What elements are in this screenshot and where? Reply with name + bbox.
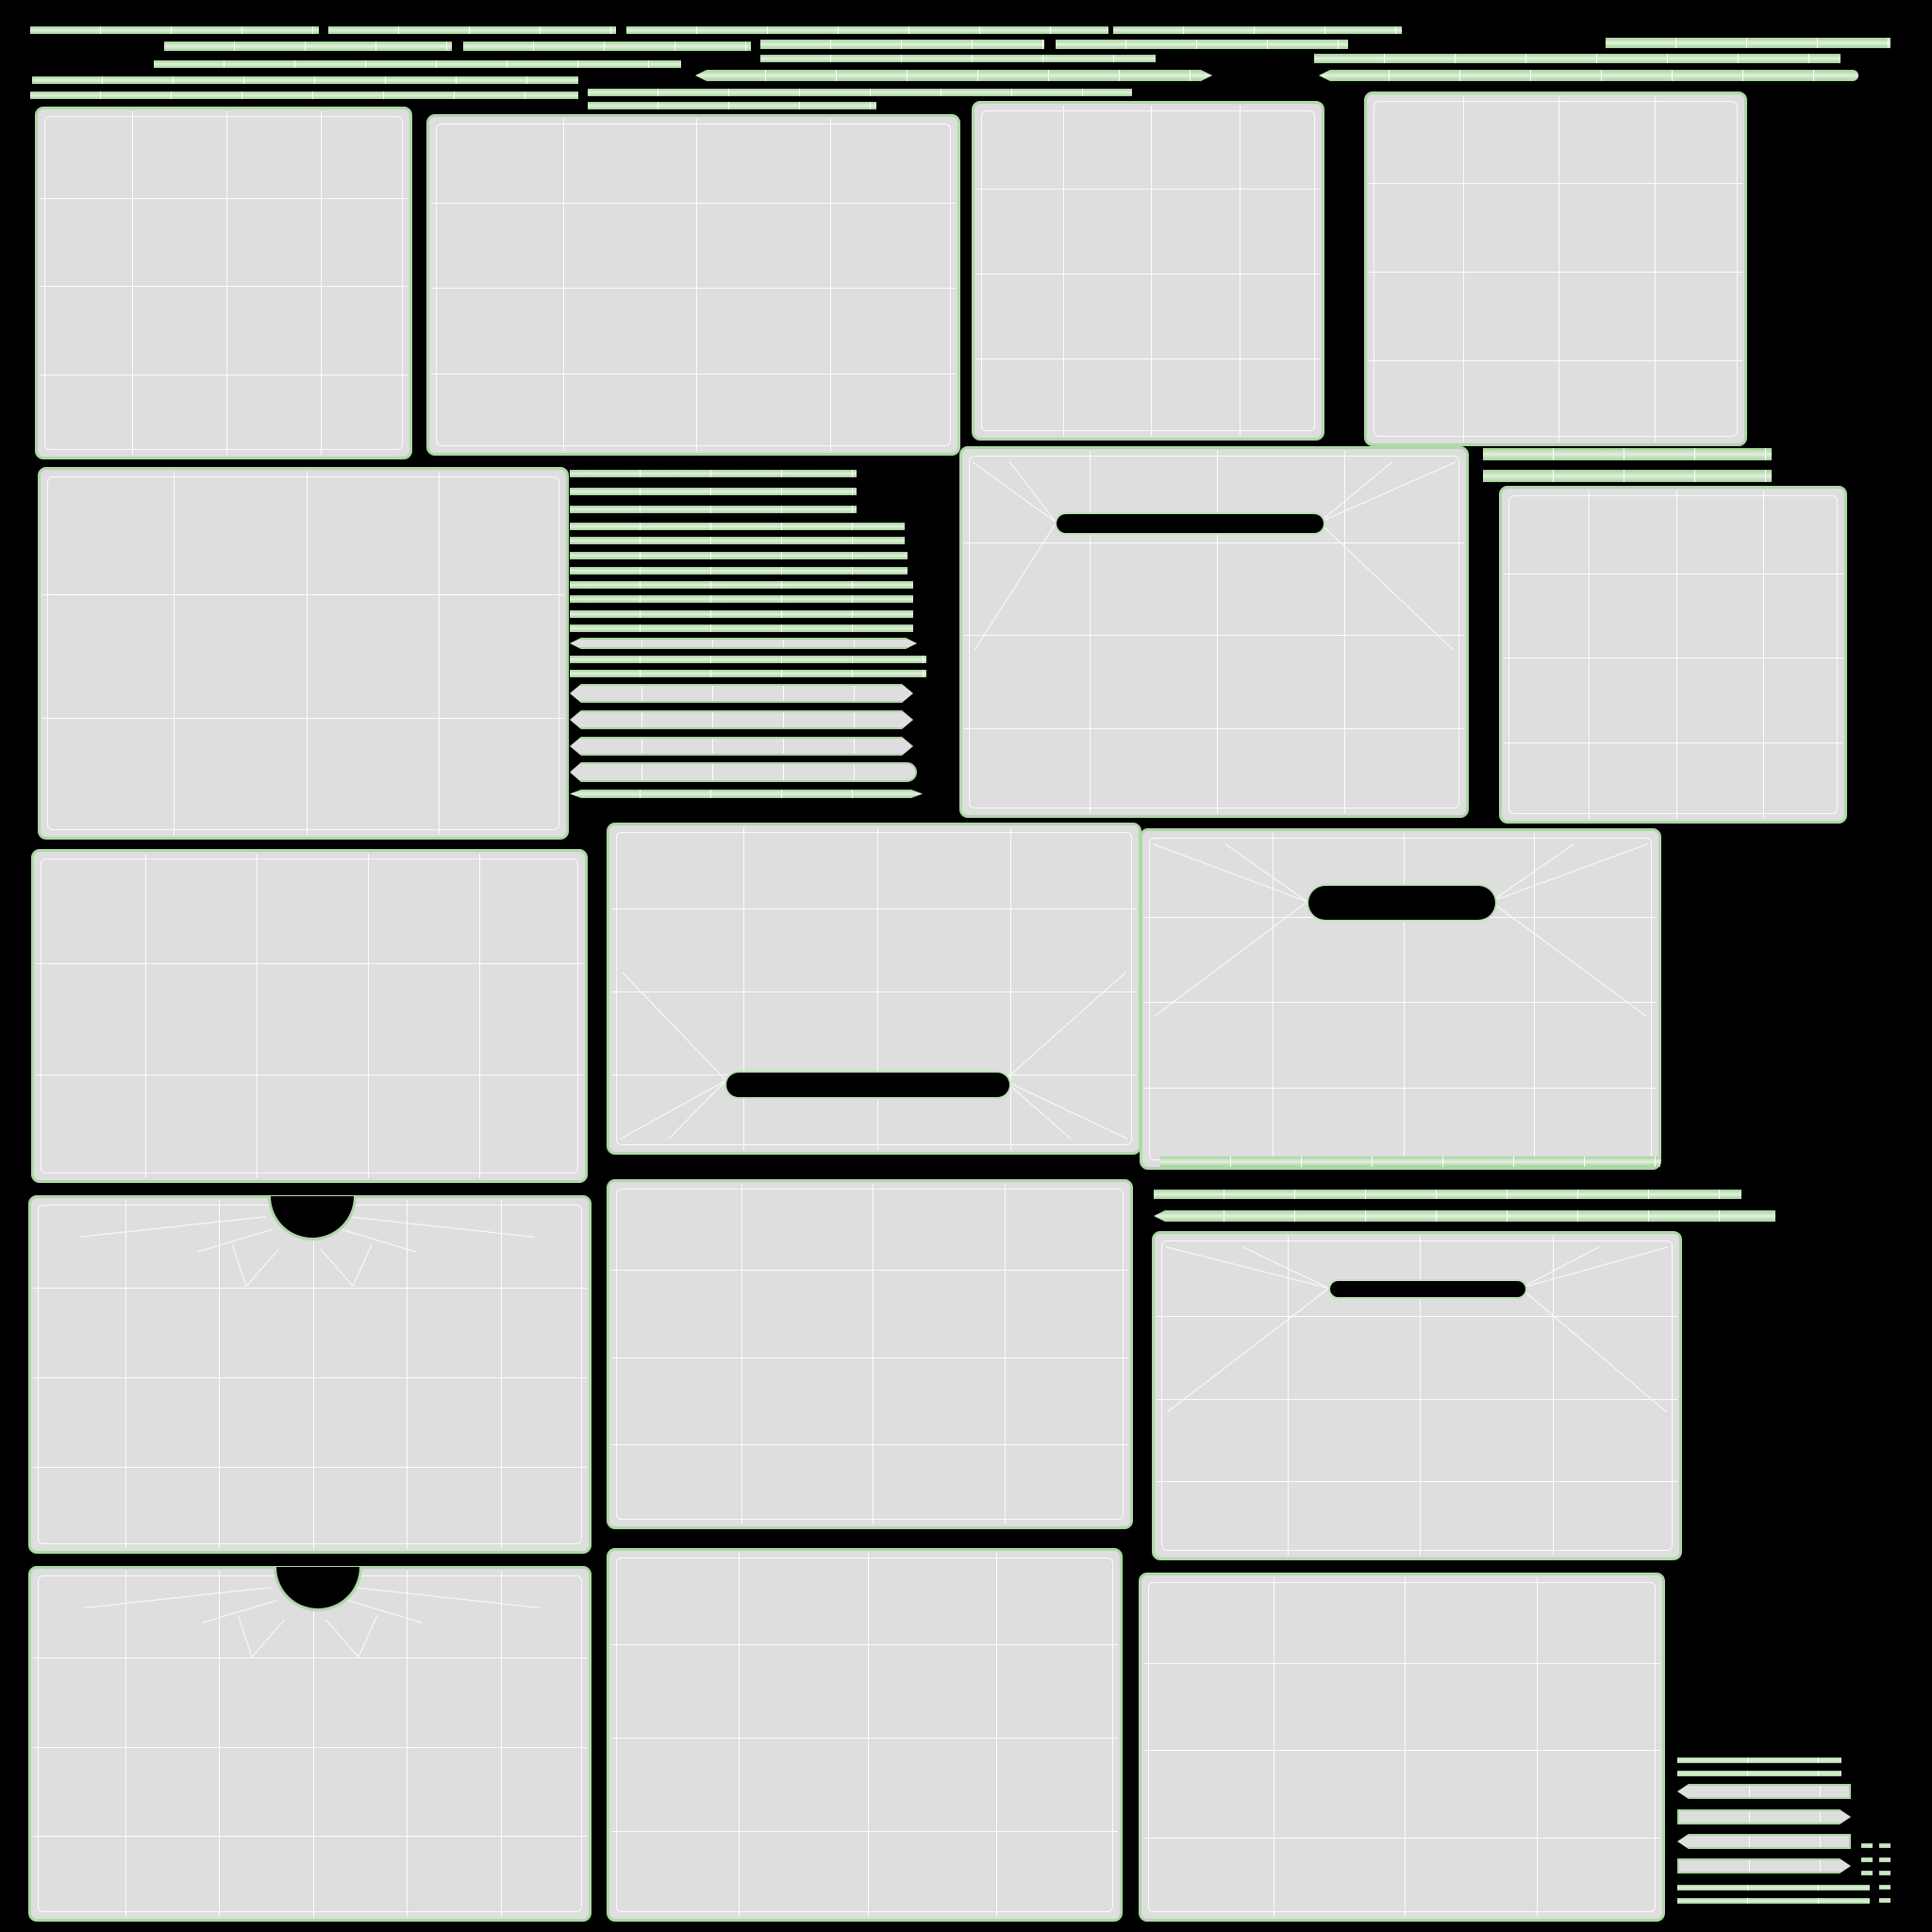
grid-line: [1553, 1236, 1554, 1556]
grid-line: [1273, 833, 1274, 1165]
uv-strip: [1677, 1809, 1851, 1824]
uv-edge-dash: [1861, 1871, 1873, 1875]
uv-strip: [1483, 448, 1772, 460]
strip-tick-marks: [572, 739, 911, 754]
grid-line: [257, 854, 258, 1178]
uv-island-grid: [38, 467, 569, 840]
uv-strip: [570, 625, 913, 632]
uv-strip: [1056, 40, 1348, 49]
grid-line: [964, 728, 1464, 729]
island-inner-outline: [616, 1189, 1124, 1520]
grid-line: [611, 1644, 1118, 1645]
uv-strip: [1677, 1898, 1870, 1904]
grid-line: [40, 375, 408, 375]
uv-strip: [463, 42, 751, 51]
grid-line: [1676, 491, 1677, 819]
wire-fan: [31, 1198, 589, 1551]
grid-line: [868, 1553, 869, 1917]
strip-tick-marks: [30, 26, 319, 34]
strip-tick-marks: [572, 764, 915, 780]
island-inner-outline: [1374, 101, 1738, 437]
strip-tick-marks: [1679, 1860, 1849, 1872]
wire-fan: [31, 1569, 589, 1919]
grid-line: [313, 1200, 314, 1549]
grid-line: [1504, 574, 1842, 575]
uv-strip: [570, 470, 857, 477]
uv-strip: [1677, 1771, 1841, 1776]
uv-strip: [1677, 1834, 1851, 1849]
grid-line: [40, 198, 408, 199]
grid-line: [611, 1444, 1128, 1445]
uv-strip: [164, 42, 452, 51]
grid-line: [125, 1200, 126, 1549]
grid-line: [174, 472, 175, 835]
grid-line: [1504, 658, 1842, 658]
grid-line: [1274, 1577, 1274, 1917]
strip-tick-marks: [570, 790, 923, 798]
grid-line: [226, 111, 227, 455]
strip-tick-marks: [760, 40, 1044, 49]
strip-tick-marks: [154, 60, 681, 68]
grid-line: [1157, 1399, 1677, 1400]
strip-tick-marks: [570, 595, 913, 603]
uv-edge-dash: [1879, 1843, 1890, 1848]
grid-line: [1143, 1663, 1660, 1664]
grid-line: [877, 827, 878, 1150]
strip-tick-marks: [570, 552, 908, 559]
uv-strip: [570, 670, 926, 677]
uv-island-grid: [607, 1179, 1133, 1529]
uv-island-notch: [28, 1195, 591, 1554]
uv-island-grid: [972, 101, 1324, 441]
island-inner-outline: [436, 124, 951, 446]
strip-tick-marks: [570, 537, 905, 544]
strip-tick-marks: [1677, 1898, 1870, 1904]
strip-tick-marks: [1483, 448, 1772, 460]
grid-line: [33, 1747, 587, 1748]
strip-tick-marks: [1679, 1811, 1849, 1823]
grid-line: [36, 963, 583, 964]
grid-line: [611, 1738, 1118, 1739]
uv-strip: [1314, 54, 1840, 63]
grid-line: [611, 1357, 1128, 1358]
grid-line: [1369, 360, 1742, 361]
grid-line: [611, 1270, 1128, 1271]
slot-cutout: [1057, 514, 1324, 533]
grid-line: [219, 1200, 220, 1549]
grid-line: [368, 854, 369, 1178]
grid-line: [132, 111, 133, 455]
uv-island-slot-top: [1140, 828, 1661, 1170]
uv-island-grid: [607, 1548, 1123, 1922]
uv-edge-dash: [1861, 1857, 1873, 1862]
uv-strip: [32, 76, 578, 84]
strip-tick-marks: [570, 610, 913, 618]
grid-line: [33, 1657, 587, 1658]
grid-line: [1369, 183, 1742, 184]
uv-strip: [570, 506, 857, 513]
uv-strip: [570, 537, 905, 544]
strip-tick-marks: [1113, 26, 1402, 34]
grid-line: [431, 374, 956, 375]
grid-line: [33, 1377, 587, 1378]
grid-line: [407, 1571, 408, 1917]
strip-tick-marks: [1677, 1771, 1841, 1776]
uv-strip: [760, 40, 1044, 49]
uv-edge-dash: [1861, 1843, 1873, 1848]
strip-tick-marks: [328, 26, 616, 34]
uv-atlas-canvas: [0, 0, 1932, 1932]
strip-tick-marks: [1483, 470, 1772, 482]
uv-strip: [570, 610, 913, 618]
uv-strip: [1677, 1858, 1851, 1874]
grid-line: [40, 286, 408, 287]
uv-strip: [1677, 1757, 1841, 1763]
uv-strip: [1160, 1157, 1660, 1167]
strip-tick-marks: [572, 712, 911, 727]
uv-strip: [1319, 70, 1858, 81]
grid-line: [1537, 1577, 1538, 1917]
uv-strip: [570, 638, 917, 649]
uv-strip: [570, 552, 908, 559]
grid-line: [1090, 451, 1091, 813]
grid-line: [1005, 1184, 1006, 1524]
grid-line: [1151, 106, 1152, 436]
strip-tick-marks: [1606, 38, 1890, 48]
uv-strip: [1154, 1190, 1741, 1199]
strip-tick-marks: [570, 470, 857, 477]
grid-line: [1405, 1577, 1406, 1917]
grid-line: [313, 1571, 314, 1917]
strip-tick-marks: [570, 670, 926, 677]
grid-line: [1063, 106, 1064, 436]
strip-tick-marks: [570, 523, 905, 530]
grid-line: [739, 1553, 740, 1917]
grid-line: [431, 288, 956, 289]
strip-tick-marks: [1160, 1157, 1660, 1167]
uv-island-grid: [1139, 1573, 1665, 1922]
grid-line: [1144, 1002, 1657, 1003]
grid-line: [696, 119, 697, 451]
notch-cutout: [274, 1567, 362, 1611]
uv-island-grid: [31, 849, 588, 1183]
uv-island-grid: [35, 107, 412, 459]
grid-line: [33, 1288, 587, 1289]
grid-line: [1143, 1750, 1660, 1751]
grid-line: [611, 1831, 1118, 1832]
uv-island-notch: [28, 1566, 591, 1922]
island-inner-outline: [616, 832, 1132, 1145]
strip-tick-marks: [1056, 40, 1348, 49]
grid-line: [1763, 491, 1764, 819]
grid-line: [964, 542, 1464, 543]
island-inner-outline: [1508, 495, 1838, 814]
uv-edge-dash: [1879, 1885, 1890, 1890]
grid-line: [307, 472, 308, 835]
strip-tick-marks: [164, 42, 452, 51]
uv-edge-dash: [1879, 1871, 1890, 1875]
island-inner-outline: [981, 110, 1315, 431]
strip-tick-marks: [588, 89, 1132, 96]
grid-line: [321, 111, 322, 455]
grid-line: [407, 1200, 408, 1549]
grid-line: [42, 594, 564, 595]
grid-line: [611, 908, 1137, 909]
uv-strip: [1154, 1210, 1775, 1222]
grid-line: [1288, 1236, 1289, 1556]
grid-line: [1534, 833, 1535, 1165]
grid-line: [873, 1184, 874, 1524]
wire-fan: [962, 449, 1466, 815]
grid-line: [611, 991, 1137, 992]
uv-island-slot-bottom: [607, 823, 1141, 1155]
grid-line: [431, 203, 956, 204]
grid-line: [501, 1571, 502, 1917]
slot-cutout: [1308, 886, 1495, 920]
strip-tick-marks: [1319, 70, 1858, 81]
uv-strip: [570, 684, 913, 703]
grid-line: [1655, 96, 1656, 441]
grid-line: [976, 274, 1320, 275]
grid-line: [145, 854, 146, 1178]
uv-strip: [570, 523, 905, 530]
uv-strip: [570, 656, 926, 663]
strip-tick-marks: [463, 42, 751, 51]
uv-edge-dash: [1879, 1898, 1890, 1903]
uv-strip: [626, 26, 1108, 34]
strip-tick-marks: [570, 567, 908, 575]
uv-island-slot-top: [959, 446, 1469, 818]
strip-tick-marks: [626, 26, 1108, 34]
grid-line: [741, 1184, 742, 1524]
uv-strip: [1113, 26, 1402, 34]
uv-strip: [588, 102, 876, 109]
strip-tick-marks: [1679, 1786, 1849, 1797]
island-inner-outline: [1148, 1582, 1656, 1912]
strip-tick-marks: [695, 70, 1212, 81]
grid-line: [479, 854, 480, 1178]
uv-strip: [1483, 470, 1772, 482]
grid-line: [1157, 1316, 1677, 1317]
uv-strip: [1606, 38, 1890, 48]
grid-line: [125, 1571, 126, 1917]
uv-strip: [570, 710, 913, 729]
grid-line: [1504, 742, 1842, 743]
grid-line: [996, 1553, 997, 1917]
grid-line: [1463, 96, 1464, 441]
strip-tick-marks: [32, 76, 578, 84]
island-inner-outline: [41, 858, 578, 1174]
notch-cutout: [268, 1196, 357, 1241]
island-inner-outline: [616, 1557, 1113, 1912]
grid-line: [33, 1836, 587, 1837]
uv-strip: [588, 89, 1132, 96]
uv-edge-dash: [1879, 1857, 1890, 1862]
island-inner-outline: [44, 116, 403, 450]
uv-strip: [695, 70, 1212, 81]
uv-strip: [30, 92, 578, 99]
uv-island-grid: [1364, 92, 1747, 446]
grid-line: [501, 1200, 502, 1549]
strip-tick-marks: [760, 55, 1156, 62]
island-inner-outline: [969, 456, 1459, 808]
strip-tick-marks: [1154, 1190, 1741, 1199]
grid-line: [1010, 827, 1011, 1150]
grid-line: [976, 189, 1320, 190]
strip-tick-marks: [1679, 1836, 1849, 1847]
strip-tick-marks: [1677, 1757, 1841, 1763]
strip-tick-marks: [1154, 1210, 1775, 1222]
grid-line: [439, 472, 440, 835]
strip-tick-marks: [570, 656, 926, 663]
strip-tick-marks: [570, 625, 913, 632]
strip-tick-marks: [1677, 1885, 1870, 1890]
uv-island-grid: [1499, 486, 1847, 824]
grid-line: [976, 358, 1320, 359]
strip-tick-marks: [30, 92, 578, 99]
grid-line: [830, 119, 831, 451]
grid-line: [1404, 833, 1405, 1165]
grid-line: [1344, 451, 1345, 813]
uv-strip: [570, 581, 913, 589]
strip-tick-marks: [572, 640, 915, 647]
grid-line: [964, 635, 1464, 636]
slot-cutout: [726, 1073, 1009, 1097]
uv-island-slot-top: [1152, 1231, 1682, 1560]
uv-strip: [1677, 1885, 1870, 1890]
uv-strip: [570, 567, 908, 575]
slot-cutout: [1330, 1281, 1525, 1297]
grid-line: [743, 827, 744, 1150]
uv-island-grid: [426, 114, 960, 456]
strip-tick-marks: [570, 581, 913, 589]
wire-fan: [1142, 831, 1658, 1167]
uv-strip: [154, 60, 681, 68]
grid-line: [33, 1467, 587, 1468]
grid-line: [1143, 1838, 1660, 1839]
grid-line: [42, 718, 564, 719]
grid-line: [1589, 491, 1590, 819]
grid-line: [36, 1074, 583, 1075]
grid-line: [1144, 1088, 1657, 1089]
grid-line: [1369, 272, 1742, 273]
strip-tick-marks: [1314, 54, 1840, 63]
grid-line: [1217, 451, 1218, 813]
grid-line: [1558, 96, 1559, 441]
uv-strip: [760, 55, 1156, 62]
uv-strip: [570, 595, 913, 603]
strip-tick-marks: [570, 506, 857, 513]
uv-strip: [570, 762, 917, 782]
grid-line: [1157, 1481, 1677, 1482]
island-inner-outline: [47, 476, 559, 830]
uv-strip: [1677, 1784, 1851, 1799]
uv-strip: [30, 26, 319, 34]
uv-strip: [570, 790, 923, 798]
grid-line: [219, 1571, 220, 1917]
uv-strip: [570, 488, 857, 495]
wire-fan: [609, 825, 1139, 1152]
strip-tick-marks: [572, 686, 911, 701]
uv-strip: [328, 26, 616, 34]
strip-tick-marks: [570, 488, 857, 495]
strip-tick-marks: [588, 102, 876, 109]
grid-line: [563, 119, 564, 451]
grid-line: [1240, 106, 1241, 436]
uv-strip: [570, 737, 913, 756]
